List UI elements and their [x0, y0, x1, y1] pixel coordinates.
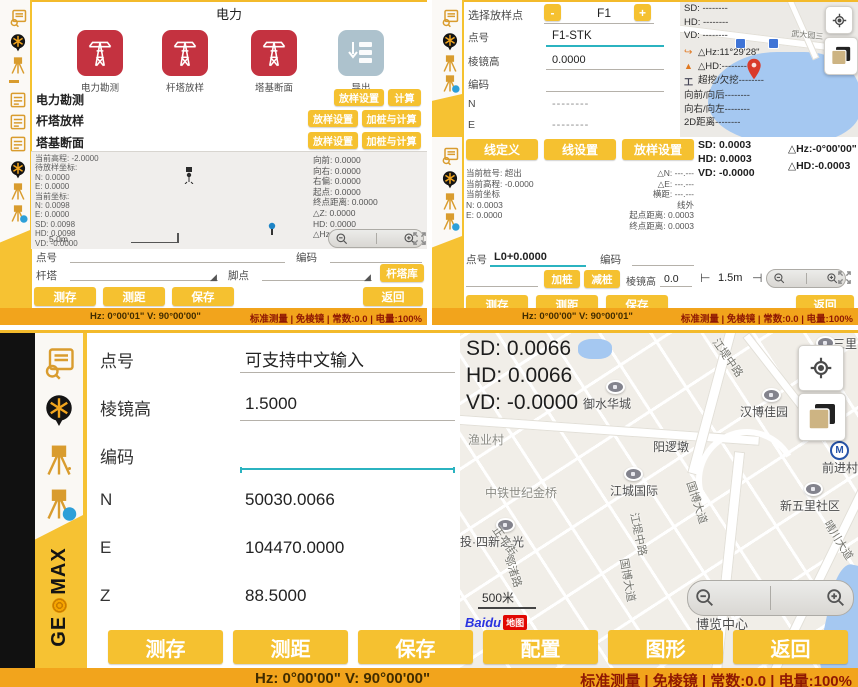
- prism-icon[interactable]: [436, 32, 456, 52]
- tile-tower-base-section[interactable]: [251, 30, 297, 76]
- info-line: E: 0.0000: [35, 182, 99, 191]
- station-setup-icon[interactable]: [436, 192, 456, 212]
- line-settings-button[interactable]: 线设置: [544, 139, 616, 160]
- data-manager-icon[interactable]: [436, 146, 456, 166]
- info-line: E: 0.0000: [466, 210, 534, 221]
- sidebar-brand-block: GEMAX: [432, 236, 462, 308]
- status-bar: Hz: 0°00'01" V: 90°00'00" 标准测量 | 免棱镜 | 常…: [0, 308, 427, 325]
- point-number-label: 点号: [100, 347, 134, 372]
- pond: [578, 339, 612, 359]
- point-number-input[interactable]: [240, 348, 455, 373]
- code-label: 编码: [600, 252, 621, 267]
- graphics-button[interactable]: 图形: [608, 630, 723, 664]
- menu-list-icon[interactable]: [4, 112, 24, 132]
- elevation-label: Z: [100, 586, 110, 606]
- data-manager-icon[interactable]: [4, 8, 24, 28]
- info-line: △N: ---.---: [580, 168, 694, 179]
- point-number-input[interactable]: [70, 249, 285, 263]
- angle-readout: Hz: 0°00'01" V: 90°00'00": [90, 311, 201, 322]
- info-line: HD: --------: [684, 16, 728, 30]
- dropdown-icon[interactable]: ◢: [364, 272, 371, 283]
- menu-row-label: 电力勘测: [36, 91, 84, 108]
- save-button[interactable]: 保存: [358, 630, 473, 664]
- back-button[interactable]: 返回: [363, 287, 423, 306]
- panel-power-menu: GEMAX 电力 电力勘测 杆塔放样 塔基断面 导出 电力勘测 放样设置 计算 …: [0, 0, 427, 325]
- geomax-logo: GEMAX: [42, 532, 76, 662]
- tile-label: 杆塔放样: [143, 80, 227, 94]
- zoom-control[interactable]: [766, 269, 846, 288]
- remove-stake-button[interactable]: 减桩: [584, 270, 620, 288]
- logo-ge: GE: [48, 616, 71, 647]
- scale-bar: [131, 234, 177, 243]
- survey-canvas[interactable]: 当前高程: -2.0000待放样坐标:N: 0.0000E: 0.0000当前坐…: [31, 151, 427, 249]
- sidebar: GEMAX: [35, 333, 83, 668]
- power-tower-icon: [167, 35, 203, 71]
- up-arrow-icon: ▲: [684, 61, 695, 72]
- map-label: 前进村: [822, 459, 858, 476]
- zoom-control[interactable]: [687, 580, 854, 616]
- east-value: --------: [552, 119, 589, 131]
- add-stake-button[interactable]: 加桩: [544, 270, 580, 288]
- poi-marker-icon: [768, 38, 779, 49]
- prism-icon[interactable]: [4, 160, 24, 180]
- expand-icon[interactable]: [412, 231, 427, 246]
- menu-row-label: 杆塔放样: [36, 112, 84, 129]
- metro-icon: M: [830, 441, 849, 460]
- zoom-divider: [806, 273, 807, 285]
- map-label: 江城国际: [610, 482, 658, 499]
- mode-readout: 标准测量 | 免棱镜 | 常数:0.0 | 电量:100%: [580, 670, 852, 687]
- stakeout-settings-button[interactable]: 放样设置: [622, 139, 694, 160]
- stake-point-underline: [544, 10, 654, 24]
- station-setup-icon[interactable]: [41, 443, 77, 479]
- prism-height-input[interactable]: [660, 273, 692, 287]
- tile-power-survey[interactable]: [77, 30, 123, 76]
- info-line: VD: -0.0000: [466, 389, 578, 416]
- zoom-out-icon[interactable]: [773, 272, 786, 285]
- info-line: SD: 0.0003: [698, 138, 755, 152]
- info-line: 向右: 0.0000: [313, 166, 378, 177]
- info-line: 当前高程: -2.0000: [35, 154, 99, 163]
- distance-readout: SD: --------HD: --------VD: --------: [684, 2, 728, 43]
- foot-point-select[interactable]: [262, 267, 372, 281]
- sidebar-divider: [83, 333, 87, 668]
- info-line: 右偏: 0.0000: [313, 176, 378, 187]
- measure-distance-button[interactable]: 测距: [103, 287, 165, 306]
- stakeout-settings-button[interactable]: 放样设置: [334, 89, 384, 106]
- zoom-divider: [376, 233, 377, 245]
- map-label: 汉博佳园: [740, 403, 788, 420]
- east-label: E: [100, 538, 111, 558]
- info-line: 终点距离: 0.0003: [580, 221, 694, 232]
- station-setup-icon[interactable]: [436, 54, 456, 74]
- code-input[interactable]: [632, 252, 694, 266]
- north-value: --------: [552, 98, 589, 110]
- station-info-icon[interactable]: [41, 487, 77, 523]
- map-scale-label: 500米: [482, 589, 514, 606]
- panel-measure-map: GEMAX 点号 可支持中文输入 棱镜高 1.5000 编码 N 50030.0…: [0, 330, 858, 687]
- station-setup-icon[interactable]: [4, 182, 24, 202]
- info-line: N: 0.0000: [35, 173, 99, 182]
- add-stake-calc-button[interactable]: 加桩与计算: [362, 110, 421, 127]
- map-label: 中铁世纪金桥: [485, 484, 557, 501]
- sidebar-brand-block: MAX: [432, 94, 462, 137]
- map-label: 新五里社区: [780, 497, 840, 514]
- menu-list-icon[interactable]: [4, 134, 24, 154]
- road-label: 江堤中路: [626, 511, 651, 557]
- poi-icon: [762, 388, 781, 402]
- point-number-label: 点号: [466, 252, 487, 267]
- stakeout-settings-button[interactable]: 放样设置: [308, 132, 358, 149]
- menu-dash-icon: [9, 80, 19, 83]
- code-label: 编码: [296, 250, 317, 265]
- result-distance-readout: SD: 0.0003HD: 0.0003VD: -0.0000: [698, 138, 755, 180]
- info-line: △Hz:-0°00'00": [788, 141, 857, 158]
- page-title: 电力: [31, 4, 427, 23]
- save-button[interactable]: 保存: [172, 287, 234, 306]
- zoom-divider: [770, 586, 771, 610]
- sidebar: MAX GEMAX: [432, 0, 464, 308]
- prism-height-label: 棱镜高: [468, 54, 500, 69]
- prism-icon[interactable]: [436, 170, 456, 190]
- info-line: △Z: 0.0000: [313, 208, 378, 219]
- letterbox-strip: [0, 333, 35, 668]
- delta-hd-readout: △HD:--------: [698, 60, 747, 74]
- angle-readout: Hz: 0°00'00" V: 90°00'01": [522, 311, 633, 322]
- info-line: 横距: ---.---: [580, 189, 694, 200]
- baidu-map-tag: 地图: [503, 615, 527, 630]
- back-button[interactable]: 返回: [733, 630, 848, 664]
- info-line: 向前: 0.0000: [313, 155, 378, 166]
- export-icon: [344, 36, 378, 70]
- info-line: SD: 0.0098: [35, 220, 99, 229]
- map-scale-label: 5.0m: [49, 234, 68, 244]
- select-stake-point-label: 选择放样点: [468, 7, 523, 23]
- status-bar: Hz: 0°00'00" V: 90°00'00" 标准测量 | 免棱镜 | 常…: [0, 668, 858, 687]
- layers-icon: [805, 400, 839, 434]
- poi-icon: [606, 380, 625, 394]
- extra-input[interactable]: [466, 273, 538, 287]
- prism-marker-icon: [268, 222, 276, 236]
- info-line: SD: --------: [684, 2, 728, 16]
- station-info-icon[interactable]: [436, 212, 456, 232]
- north-label: N: [100, 490, 112, 510]
- configure-button[interactable]: 配置: [483, 630, 598, 664]
- scale-tick-right: ⊣: [752, 271, 762, 285]
- mode-readout: 标准测量 | 免棱镜 | 常数:0.0 | 电量:100%: [681, 311, 853, 325]
- stakeout-values-right: 向前: 0.0000向右: 0.0000右偏: 0.0000起点: 0.0000…: [313, 155, 378, 240]
- baidu-logo: Baidu 地图: [465, 615, 527, 630]
- layers-button[interactable]: [824, 37, 858, 75]
- scale-bar-tick: [177, 233, 179, 243]
- prism-height-label: 棱镜高: [100, 395, 151, 420]
- sidebar-brand-block: GEMAX: [0, 230, 30, 308]
- map-label: 御水华城: [583, 395, 631, 412]
- info-line: HD: 0.0066: [466, 362, 578, 389]
- zoom-out-icon[interactable]: [694, 587, 716, 609]
- station-setup-icon[interactable]: [4, 56, 24, 76]
- data-manager-icon[interactable]: [436, 8, 456, 28]
- tile-export[interactable]: [338, 30, 384, 76]
- tile-label: 塔基断面: [232, 80, 316, 94]
- result-delta-readout: △Hz:-0°00'00"△HD:-0.0003: [788, 141, 857, 175]
- poi-icon: [804, 482, 823, 496]
- code-input[interactable]: [546, 78, 664, 92]
- panel-line-stakeout: MAX GEMAX 选择放样点 - F1 + 点号 F1-STK 棱镜高 0.0…: [432, 0, 858, 325]
- info-line: 当前坐标: [466, 189, 534, 200]
- screenshot-collage: GEMAX 电力 电力勘测 杆塔放样 塔基断面 导出 电力勘测 放样设置 计算 …: [0, 0, 858, 687]
- locate-button[interactable]: [825, 6, 853, 34]
- scale-bar: [478, 607, 536, 609]
- point-number-input[interactable]: [546, 32, 664, 47]
- elevation-value: 88.5000: [245, 586, 306, 606]
- info-line: 待放样坐标:: [35, 163, 99, 172]
- info-line: 当前坐标:: [35, 192, 99, 201]
- point-number-label: 点号: [468, 30, 489, 45]
- logo-swirl-icon: [52, 598, 67, 613]
- east-label: E: [468, 119, 475, 131]
- mode-readout: 标准测量 | 免棱镜 | 常数:0.0 | 电量:100%: [250, 311, 422, 325]
- station-info-icon[interactable]: [4, 204, 24, 224]
- info-line: 起点: 0.0000: [313, 187, 378, 198]
- logo-max: MAX: [48, 547, 71, 594]
- measure-store-button[interactable]: 测存: [34, 287, 96, 306]
- code-label: 编码: [100, 443, 134, 468]
- current-stake-info: 当前桩号: 超出当前高程: -0.0000当前坐标N: 0.0003E: 0.0…: [466, 168, 534, 221]
- poi-icon: [624, 467, 643, 481]
- prism-height-input[interactable]: [240, 396, 455, 421]
- info-line: 当前桩号: 超出: [466, 168, 534, 179]
- zoom-in-icon[interactable]: [825, 587, 847, 609]
- measurement-overlay: SD: 0.0066HD: 0.0066VD: -0.0000: [466, 335, 578, 416]
- direction-readout: 向前/向后--------向右/向左--------2D距离--------: [684, 89, 750, 130]
- info-line: HD: 0.0003: [698, 152, 755, 166]
- delta-hz-readout: △Hz:11°29'28": [698, 46, 760, 60]
- tower-select[interactable]: [70, 267, 218, 281]
- zoom-control[interactable]: [328, 229, 424, 248]
- info-line: E: 0.0000: [35, 210, 99, 219]
- measure-distance-button[interactable]: 测距: [233, 630, 348, 664]
- prism-height-label: 棱镜高: [626, 273, 656, 288]
- expand-icon[interactable]: [837, 270, 852, 285]
- locate-icon: [808, 355, 834, 381]
- info-line: 起点距离: 0.0003: [580, 210, 694, 221]
- panel-top-border: [0, 0, 427, 2]
- info-line: VD: -0.0000: [698, 166, 755, 180]
- info-line: 终点距离: 0.0000: [313, 197, 378, 208]
- station-info-icon[interactable]: [436, 74, 456, 94]
- dropdown-icon[interactable]: ◢: [210, 272, 217, 283]
- tower-label: 杆塔: [36, 268, 57, 283]
- line-define-button[interactable]: 线定义: [466, 139, 538, 160]
- menu-row-label: 塔基断面: [36, 134, 84, 151]
- sidebar: GEMAX: [0, 0, 32, 308]
- turn-arrow-icon: ↪: [684, 47, 695, 58]
- menu-list-icon[interactable]: [4, 90, 24, 110]
- info-line: △HD:-0.0003: [788, 158, 857, 175]
- east-value: 104470.0000: [245, 538, 344, 558]
- info-line: N: 0.0003: [466, 200, 534, 211]
- map-label: 渔业村: [468, 431, 504, 448]
- baidu-map[interactable]: M 三里 御水华城 汉博佳园 渔业村 阳逻墩 前进村 中铁世纪金桥 江城国际 新…: [460, 333, 858, 668]
- code-label: 编码: [468, 77, 489, 92]
- prism-icon[interactable]: [4, 33, 24, 53]
- layers-icon: [829, 44, 853, 68]
- info-line: 2D距离--------: [684, 116, 750, 130]
- code-input[interactable]: [240, 444, 455, 470]
- info-line: △E: ---.---: [580, 179, 694, 190]
- info-line: VD: --------: [684, 29, 728, 43]
- code-input[interactable]: [330, 249, 422, 263]
- baidu-wordmark: Baidu: [465, 615, 501, 630]
- foot-point-label: 脚点: [228, 268, 249, 283]
- road-label: 国博大道: [616, 557, 639, 603]
- map-label: 阳逻墩: [653, 438, 689, 455]
- map-scale-label: 1.5m: [718, 272, 742, 284]
- info-line: N: 0.0098: [35, 201, 99, 210]
- calculate-button[interactable]: 计算: [388, 89, 421, 106]
- north-value: 50030.0066: [245, 490, 335, 510]
- north-label: N: [468, 98, 476, 110]
- status-bar: Hz: 0°00'00" V: 90°00'01" 标准测量 | 免棱镜 | 常…: [432, 308, 858, 325]
- cut-fill-readout: 超挖/欠挖--------: [698, 74, 764, 88]
- info-line: 线外: [580, 200, 694, 211]
- tower-library-button[interactable]: 杆塔库: [380, 264, 424, 282]
- data-manager-icon[interactable]: [41, 345, 77, 381]
- zoom-out-icon[interactable]: [335, 232, 349, 246]
- instrument-marker-icon: [183, 166, 195, 184]
- locate-icon: [831, 12, 848, 29]
- info-line: HD: 0.0000: [313, 219, 378, 230]
- prism-icon[interactable]: [41, 393, 77, 429]
- power-tower-icon: [82, 35, 118, 71]
- tile-tower-stakeout[interactable]: [162, 30, 208, 76]
- info-line: SD: 0.0066: [466, 335, 578, 362]
- info-line: 向前/向后--------: [684, 89, 750, 103]
- offset-info: △N: ---.---△E: ---.---横距: ---.---线外起点距离:…: [580, 168, 694, 232]
- info-line: 向右/向左--------: [684, 103, 750, 117]
- locate-button[interactable]: [798, 345, 844, 391]
- angle-readout: Hz: 0°00'00" V: 90°00'00": [255, 670, 430, 687]
- scale-tick-left: ⊢: [700, 271, 710, 285]
- power-tower-icon: [256, 35, 292, 71]
- chainage-input[interactable]: [490, 252, 586, 267]
- stakeout-settings-button[interactable]: 放样设置: [308, 110, 358, 127]
- layers-button[interactable]: [798, 393, 846, 441]
- prism-height-input[interactable]: [546, 56, 664, 70]
- add-stake-calc-button[interactable]: 加桩与计算: [362, 132, 421, 149]
- cut-fill-icon: 工: [684, 75, 695, 86]
- road-label: 鄂渚路: [501, 553, 526, 589]
- info-line: 当前高程: -0.0000: [466, 179, 534, 190]
- sidebar-brand-block: GEMAX: [35, 515, 83, 668]
- point-number-label: 点号: [36, 250, 57, 265]
- measure-store-button[interactable]: 测存: [108, 630, 223, 664]
